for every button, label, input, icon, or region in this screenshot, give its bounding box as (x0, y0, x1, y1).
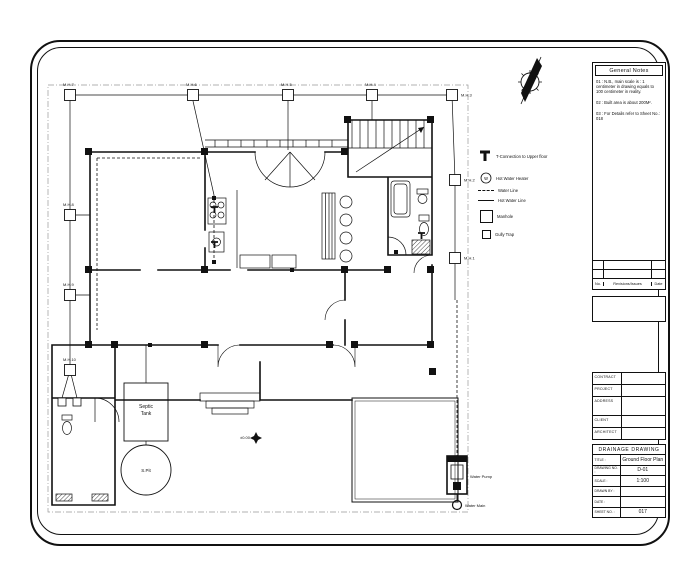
manhole-symbol (450, 175, 461, 186)
manhole-label: M.H.1 (464, 256, 475, 261)
note-line: 03 : For Details refer to Sheet No.: 018 (596, 111, 662, 121)
manholes-layer: M.H.7M.H.6M.H.5M.H.4M.H.3M.H.2M.H.1M.H.8… (63, 82, 475, 376)
septic-tank: Septic Tank (124, 383, 168, 441)
stairs (348, 120, 432, 172)
legend-label: Gully Trap (495, 232, 514, 237)
svg-text:S.Pit: S.Pit (141, 468, 151, 473)
north-arrow-icon (518, 57, 542, 104)
legend-item-water-heater: w Hot Water Heater (480, 172, 528, 184)
manhole-symbol (188, 90, 199, 101)
plot-boundary-line (48, 85, 468, 512)
manhole-label: M.H.7 (63, 82, 74, 87)
columns (85, 116, 436, 375)
title-block: DRAINAGE DRAWING TITLE : Ground Floor Pl… (592, 444, 666, 518)
manhole-label: M.H.5 (281, 82, 292, 87)
manhole-label: M.H.6 (186, 82, 197, 87)
drawing-no-row: DRAWING NO. : D-01 (593, 466, 665, 477)
info-row-project: PROJECT (593, 385, 665, 397)
legend-item-water-line: Water Line (478, 188, 518, 193)
lower-bathroom (56, 398, 119, 501)
terrace-square (352, 398, 458, 502)
door-arcs (218, 255, 432, 367)
svg-text:Water Main: Water Main (465, 503, 485, 508)
hot-water-line-icon (478, 200, 494, 201)
note-line: 02 : Built area is about 200M². (596, 100, 662, 105)
manhole-icon (480, 210, 493, 223)
building-walls (52, 120, 432, 505)
bar-island (322, 193, 352, 262)
manhole-symbol (283, 90, 294, 101)
legend-label: Hot Water Heater (496, 176, 528, 181)
info-row-address: ADDRESS (593, 397, 665, 416)
terrace-railing (205, 140, 348, 147)
svg-text:Tank: Tank (141, 411, 152, 417)
manhole-label: M.H.3 (461, 93, 472, 98)
manhole-label: M.H.4 (365, 82, 376, 87)
legend-label: Water Line (498, 188, 518, 193)
soak-pit: S.Pit (121, 445, 171, 495)
manhole-symbol (447, 90, 458, 101)
manhole-label: M.H.2 (464, 178, 475, 183)
legend-item-hot-water-line: Hot Water Line (478, 198, 526, 203)
general-notes-panel: General Notes 01 : N.B., main scale is :… (592, 62, 666, 290)
gully-trap-symbol (73, 398, 81, 406)
info-row-client: CLIENT (593, 416, 665, 428)
revisions-table: No. Revisions/Issues Date (593, 260, 665, 289)
legend-label: Hot Water Line (498, 198, 526, 203)
notes-body: 01 : N.B., main scale is : 1 centimeter … (593, 76, 665, 121)
info-row-architect: ARCHITECT (593, 428, 665, 439)
svg-text:w: w (484, 176, 488, 182)
project-info-panel: CONTRACT PROJECT ADDRESS CLIENT ARCHITEC… (592, 372, 666, 440)
kitchen-fixtures (208, 190, 296, 268)
drawn-by-row: DRAWN BY : (593, 487, 665, 498)
manhole-label: M.H.9 (63, 282, 74, 287)
svg-text:Septic: Septic (139, 404, 153, 410)
gully-trap-icon (482, 230, 491, 239)
svg-text:±0.00: ±0.00 (240, 435, 251, 440)
manhole-label: M.H.10 (63, 357, 77, 362)
t-connection-icon (478, 150, 492, 162)
revision-row (593, 261, 665, 270)
logo-box (592, 296, 666, 322)
manhole-symbol (65, 365, 76, 376)
revisions-header-row: No. Revisions/Issues Date (593, 279, 665, 289)
notes-title: General Notes (595, 65, 663, 76)
curved-counter (255, 152, 325, 187)
gully-traps-layer (58, 398, 81, 406)
bathroom-fixtures (388, 181, 430, 255)
manhole-symbol (65, 290, 76, 301)
date-row: DATE : (593, 497, 665, 508)
sheet-no-row: SHEET NO. : 017 (593, 508, 665, 518)
manhole-symbol (65, 90, 76, 101)
legend-label: Manhole (497, 214, 513, 219)
legend-label: T-Connection to Upper floor (496, 154, 547, 159)
legend-item-gully-trap: Gully Trap (482, 230, 514, 239)
drawing-sheet: M.H.7M.H.6M.H.5M.H.4M.H.3M.H.2M.H.1M.H.8… (0, 0, 700, 584)
legend-item-manhole: Manhole (480, 210, 513, 223)
info-row-contract: CONTRACT (593, 373, 665, 385)
manhole-symbol (450, 253, 461, 264)
title-block-header: DRAINAGE DRAWING (593, 445, 665, 455)
water-line-icon (478, 190, 494, 191)
water-heater-icon: w (480, 172, 492, 184)
svg-text:Water Pump: Water Pump (470, 474, 493, 479)
legend-item-t-connection: T-Connection to Upper floor (478, 150, 547, 162)
manhole-symbol (65, 210, 76, 221)
note-line: 01 : N.B., main scale is : 1 centimeter … (596, 79, 662, 94)
title-row: TITLE : Ground Floor Plan (593, 455, 665, 466)
revision-row (593, 270, 665, 279)
manhole-symbol (367, 90, 378, 101)
t-connection-symbols (211, 207, 425, 248)
entry-steps (200, 393, 260, 414)
level-marker: ±0.00 (240, 432, 262, 444)
gully-trap-symbol (58, 398, 66, 406)
scale-row: SCALE : 1:100 (593, 476, 665, 487)
drain-points (148, 196, 398, 347)
manhole-label: M.H.8 (63, 202, 74, 207)
water-pump: Water Pump (447, 456, 493, 494)
